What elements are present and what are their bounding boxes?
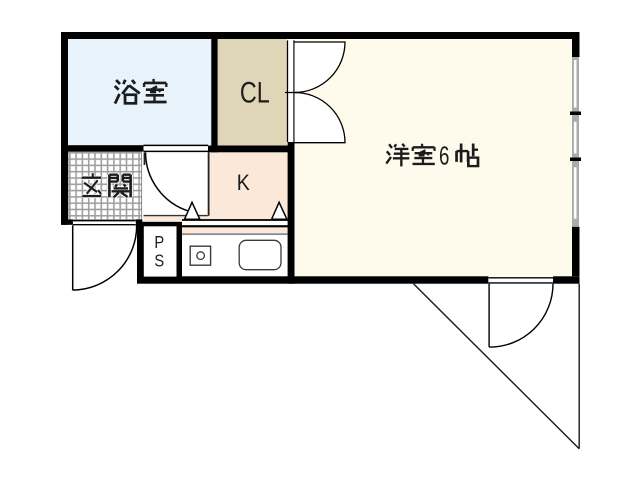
svg-text:6: 6 [439,140,449,170]
svg-text:CL: CL [240,76,270,109]
svg-text:K: K [237,171,250,195]
svg-text:S: S [154,251,164,270]
svg-text:P: P [154,233,164,252]
